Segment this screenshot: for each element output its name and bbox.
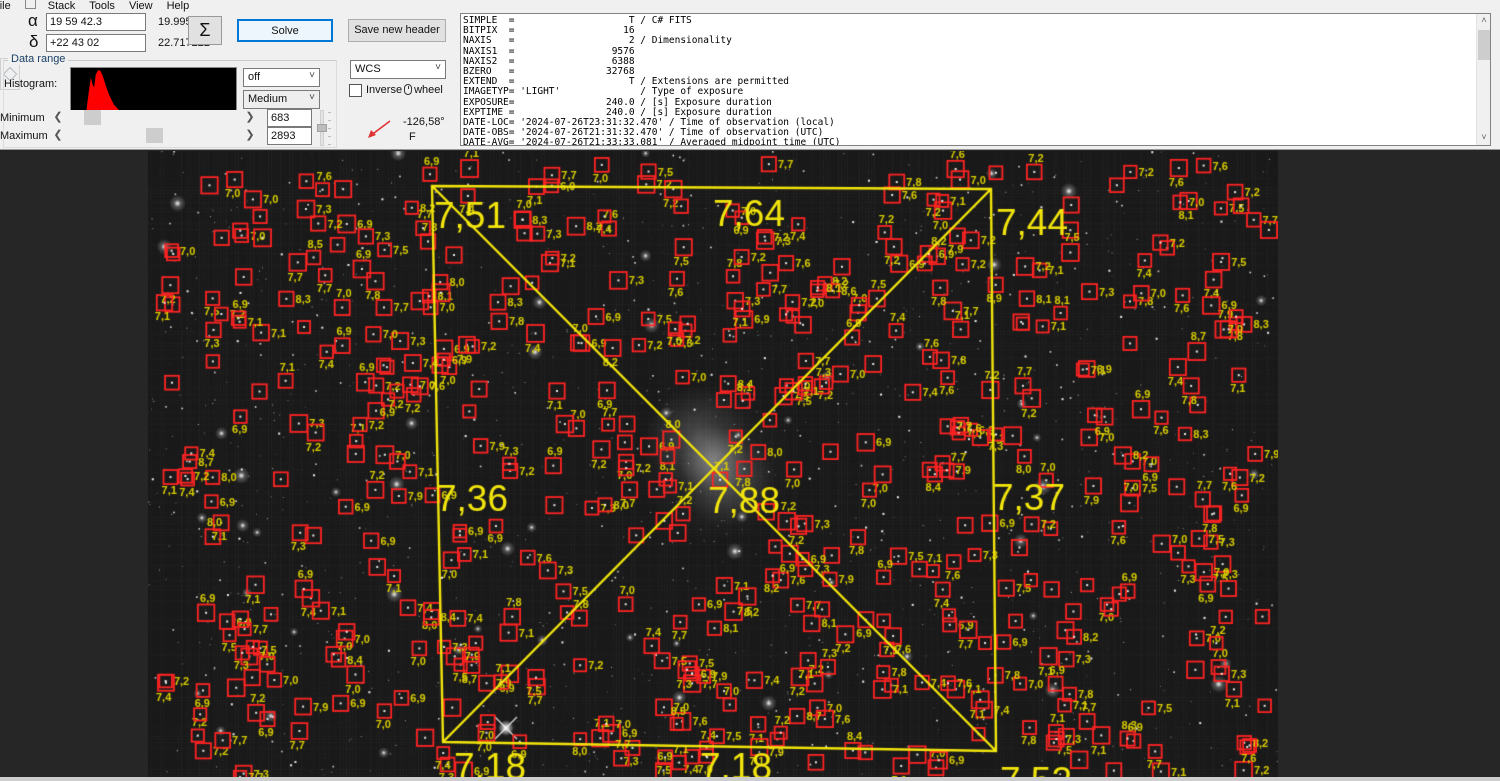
minimum-thumb[interactable]: [84, 110, 101, 125]
minimum-left-arrow[interactable]: ❮: [52, 110, 64, 125]
top-panel: FileStackToolsViewHelp ◇ α 19.995083 δ 2…: [0, 0, 1500, 150]
chevron-down-icon: ˅: [435, 62, 441, 73]
fits-header-line: DATE-AVG= '2024-07-26T21:33:33.081' / Av…: [463, 138, 1475, 145]
alpha-label: α: [28, 11, 38, 31]
minimum-right-arrow[interactable]: ❯: [244, 110, 256, 125]
scroll-down-icon[interactable]: ˅: [1477, 131, 1491, 145]
menu-item-stack[interactable]: Stack: [48, 0, 84, 12]
maximum-right-arrow[interactable]: ❯: [244, 128, 256, 143]
data-range-label: Data range: [8, 53, 68, 65]
horizontal-scrollbar[interactable]: [0, 777, 1500, 781]
range-dropdown[interactable]: Medium ˅: [243, 90, 320, 109]
wcs-dropdown[interactable]: WCS ˅: [350, 60, 446, 79]
chevron-down-icon: ˅: [309, 70, 315, 81]
maximum-value-input[interactable]: [267, 127, 312, 145]
fits-header-memo[interactable]: SIMPLE = T / C# FITSBITPIX = 16NAXIS = 2…: [460, 13, 1491, 146]
save-new-header-button[interactable]: Save new header: [348, 19, 446, 42]
solve-button[interactable]: Solve: [237, 19, 333, 42]
maximum-left-arrow[interactable]: ❮: [52, 128, 64, 143]
ra-input[interactable]: [46, 13, 146, 31]
menu-item-help[interactable]: Help: [167, 0, 198, 12]
rotation-angle-value: -126,58°: [403, 116, 445, 128]
scroll-up-icon[interactable]: ˄: [1477, 14, 1491, 28]
chevron-down-icon: ˅: [309, 92, 315, 103]
astap-window: FileStackToolsViewHelp ◇ α 19.995083 δ 2…: [0, 0, 1500, 781]
image-viewer: [0, 150, 1500, 781]
menu-item-tools[interactable]: Tools: [89, 0, 123, 12]
mouse-wheel-icon: [404, 84, 412, 95]
histogram-display: [70, 67, 237, 116]
fits-header-text: SIMPLE = T / C# FITSBITPIX = 16NAXIS = 2…: [463, 16, 1475, 145]
histogram-label: Histogram:: [4, 78, 57, 90]
flip-indicator: F: [409, 131, 416, 143]
minimum-value-input[interactable]: [267, 109, 312, 127]
slider-knob[interactable]: [317, 124, 327, 132]
menu-item-file[interactable]: File: [0, 0, 19, 12]
minimum-scrollbar[interactable]: [64, 110, 244, 125]
stretch-dropdown[interactable]: off ˅: [243, 68, 320, 87]
minimum-label: Minimum: [0, 112, 45, 124]
menu-bar: FileStackToolsViewHelp: [0, 0, 460, 12]
dec-input[interactable]: [46, 34, 146, 52]
maximum-label: Maximum: [0, 130, 48, 142]
restore-window-icon[interactable]: [27, 1, 36, 9]
menu-item-view[interactable]: View: [129, 0, 161, 12]
inverse-wheel-label: Inversewheel: [366, 84, 443, 96]
rotation-arrow-icon: [362, 117, 394, 141]
range-fine-slider[interactable]: [315, 108, 331, 148]
starfield-image[interactable]: [148, 151, 1278, 781]
delta-label: δ: [29, 32, 38, 52]
maximum-thumb[interactable]: [146, 128, 163, 143]
maximum-scrollbar[interactable]: [64, 128, 244, 143]
histogram-curve: [71, 68, 236, 115]
sigma-stack-button[interactable]: Σ: [188, 16, 222, 45]
inverse-wheel-checkbox[interactable]: [349, 84, 362, 97]
fits-scroll-thumb[interactable]: [1478, 30, 1490, 60]
fits-scrollbar[interactable]: ˄ ˅: [1476, 14, 1490, 145]
